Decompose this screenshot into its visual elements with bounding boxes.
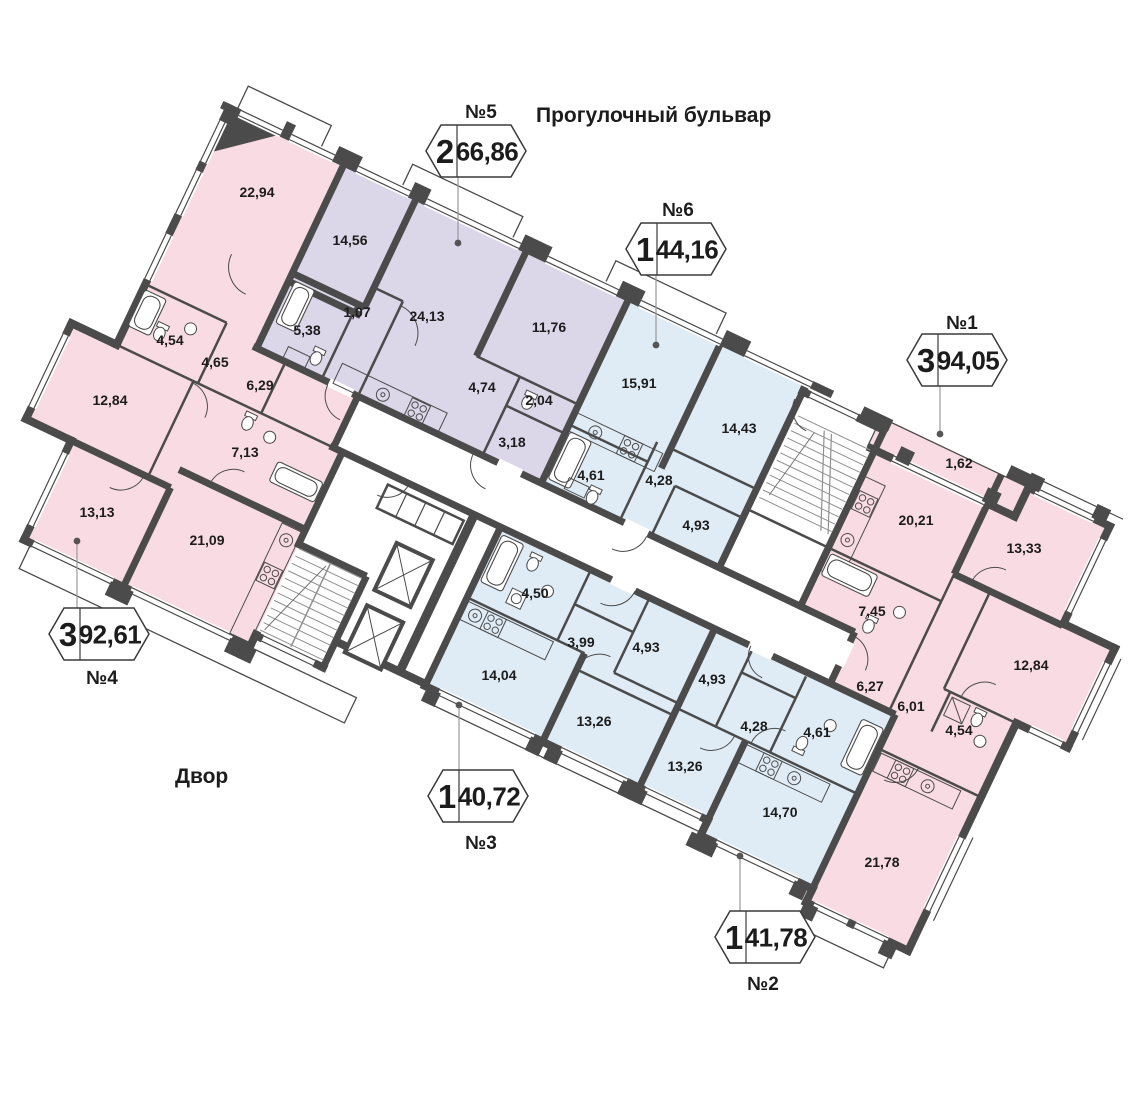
svg-text:6,29: 6,29 <box>246 377 273 393</box>
svg-text:4,50: 4,50 <box>521 585 548 601</box>
svg-text:11,76: 11,76 <box>532 319 566 335</box>
svg-text:15,91: 15,91 <box>621 375 656 391</box>
svg-text:1: 1 <box>725 919 743 956</box>
svg-text:2: 2 <box>436 133 454 170</box>
svg-text:13,33: 13,33 <box>1006 540 1041 556</box>
svg-text:3,99: 3,99 <box>567 634 594 650</box>
svg-text:21,78: 21,78 <box>864 854 899 870</box>
svg-text:21,09: 21,09 <box>189 532 224 548</box>
svg-text:20,21: 20,21 <box>898 512 933 528</box>
svg-text:4,54: 4,54 <box>156 332 183 348</box>
svg-text:6,01: 6,01 <box>897 698 924 714</box>
svg-text:1: 1 <box>636 231 654 268</box>
svg-text:№3: №3 <box>465 833 497 854</box>
svg-text:№2: №2 <box>747 974 779 995</box>
svg-text:Прогулочный бульвар: Прогулочный бульвар <box>536 104 771 127</box>
svg-text:14,56: 14,56 <box>332 232 367 248</box>
svg-text:41,78: 41,78 <box>745 923 808 953</box>
svg-text:44,16: 44,16 <box>656 235 719 265</box>
svg-text:4,93: 4,93 <box>632 639 659 655</box>
svg-text:12,84: 12,84 <box>92 392 127 408</box>
svg-text:Двор: Двор <box>175 765 228 788</box>
svg-text:66,86: 66,86 <box>456 137 519 167</box>
svg-text:4,74: 4,74 <box>468 379 495 395</box>
svg-text:4,61: 4,61 <box>803 724 830 740</box>
svg-text:13,26: 13,26 <box>576 713 611 729</box>
svg-text:4,93: 4,93 <box>682 517 709 533</box>
svg-text:14,43: 14,43 <box>721 420 756 436</box>
svg-text:7,13: 7,13 <box>231 444 258 460</box>
svg-text:3: 3 <box>59 616 77 653</box>
svg-text:12,84: 12,84 <box>1013 657 1048 673</box>
svg-text:2,04: 2,04 <box>525 392 552 408</box>
svg-text:13,13: 13,13 <box>79 504 114 520</box>
svg-text:№6: №6 <box>662 200 694 221</box>
svg-text:4,28: 4,28 <box>645 472 672 488</box>
svg-text:6,27: 6,27 <box>856 678 883 694</box>
svg-text:7,45: 7,45 <box>858 603 885 619</box>
svg-text:24,13: 24,13 <box>409 308 444 324</box>
svg-text:1,62: 1,62 <box>945 455 972 471</box>
svg-text:92,61: 92,61 <box>79 620 142 650</box>
svg-text:3,18: 3,18 <box>498 434 525 450</box>
svg-text:№1: №1 <box>946 313 978 334</box>
svg-text:4,54: 4,54 <box>945 722 972 738</box>
svg-text:40,72: 40,72 <box>458 782 521 812</box>
svg-text:1: 1 <box>438 778 456 815</box>
svg-text:4,93: 4,93 <box>698 671 725 687</box>
svg-text:№4: №4 <box>86 668 118 689</box>
svg-text:13,26: 13,26 <box>667 758 702 774</box>
svg-text:94,05: 94,05 <box>937 346 1000 376</box>
svg-text:4,28: 4,28 <box>740 718 767 734</box>
svg-text:14,70: 14,70 <box>762 804 797 820</box>
svg-text:1,07: 1,07 <box>343 304 370 320</box>
svg-text:5,38: 5,38 <box>293 322 320 338</box>
svg-text:№5: №5 <box>465 102 497 123</box>
svg-text:22,94: 22,94 <box>239 184 274 200</box>
svg-text:4,61: 4,61 <box>577 467 604 483</box>
svg-text:4,65: 4,65 <box>201 354 228 370</box>
svg-text:14,04: 14,04 <box>481 667 516 683</box>
svg-text:3: 3 <box>917 342 935 379</box>
